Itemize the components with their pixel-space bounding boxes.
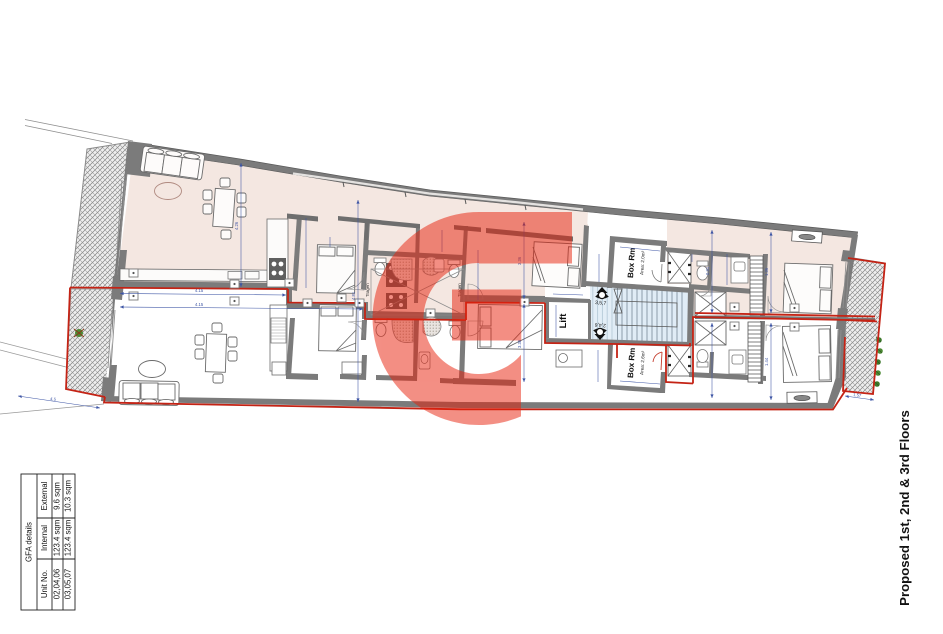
svg-text:123.4 sqm: 123.4 sqm <box>64 520 73 556</box>
svg-text:4.81: 4.81 <box>351 291 356 300</box>
svg-text:4.5: 4.5 <box>50 396 57 402</box>
svg-text:123.4 sqm: 123.4 sqm <box>53 520 62 556</box>
svg-text:3,5,7: 3,5,7 <box>595 300 607 307</box>
svg-text:02,04,06: 02,04,06 <box>53 569 62 599</box>
svg-text:Internal: Internal <box>40 525 49 551</box>
svg-text:1.44: 1.44 <box>764 357 769 366</box>
svg-text:9.6 sqm: 9.6 sqm <box>53 482 62 510</box>
svg-text:10.3 sqm: 10.3 sqm <box>64 480 73 512</box>
svg-text:4.15: 4.15 <box>195 302 204 307</box>
svg-text:Lift: Lift <box>558 313 569 329</box>
svg-text:GFA details: GFA details <box>25 522 34 562</box>
svg-text:4.26: 4.26 <box>234 221 239 230</box>
svg-text:Tragen: Tragen <box>365 283 370 297</box>
svg-text:External: External <box>40 481 49 510</box>
svg-text:3.38: 3.38 <box>517 339 522 348</box>
svg-text:1.36: 1.36 <box>764 267 769 276</box>
svg-text:4.15: 4.15 <box>195 288 204 293</box>
svg-text:Unit No.: Unit No. <box>40 570 49 598</box>
svg-text:03,05,07: 03,05,07 <box>64 569 73 599</box>
svg-text:Proposed 1st, 2nd & 3rd Floors: Proposed 1st, 2nd & 3rd Floors <box>897 410 912 606</box>
svg-text:2,4,6: 2,4,6 <box>594 321 606 328</box>
svg-text:0.31: 0.31 <box>705 266 710 275</box>
svg-text:1.57: 1.57 <box>853 392 862 398</box>
